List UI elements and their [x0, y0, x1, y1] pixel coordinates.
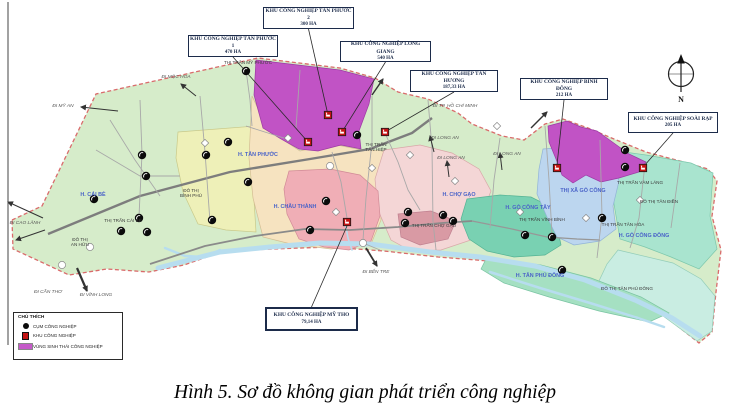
callout-zone-area: 300 HA — [265, 22, 352, 28]
industrial-cluster-marker-icon — [621, 163, 629, 171]
industrial-cluster-marker-icon — [202, 151, 210, 159]
eco-industrial-area-swatch — [18, 343, 33, 350]
industrial-cluster-marker-icon — [521, 231, 529, 239]
callout-kcn-tan-phuoc-2: KHU CÔNG NGHIỆP TÂN PHƯỚC 2300 HA — [263, 7, 354, 29]
town-label: THỊ TRẤN TÂN HÒA — [602, 221, 646, 227]
industrial-cluster-marker-icon — [306, 226, 314, 234]
callout-kcn-my-tho: KHU CÔNG NGHIỆP MỸ THO79,14 HA — [265, 307, 358, 331]
legend-item-label: CỤM CÔNG NGHIỆP — [33, 324, 77, 329]
callout-kcn-tan-phuoc-1: KHU CÔNG NGHIỆP TÂN PHƯỚC 1470 HA — [188, 35, 278, 57]
district-label: H. TÂN PHƯỚC — [238, 150, 278, 158]
route-shield-circle-icon — [326, 162, 333, 169]
industrial-cluster-marker-icon — [244, 178, 252, 186]
industrial-zone-marker-icon — [304, 138, 311, 145]
direction-label: ĐI TP. HỒ CHÍ MINH — [433, 102, 478, 109]
district-label: H. CHỢ GẠO — [442, 192, 475, 198]
legend-item-label: VÙNG SINH THÁI CÔNG NGHIỆP — [33, 344, 103, 349]
callout-zone-name: KHU CÔNG NGHIỆP LONG GIANG — [342, 41, 429, 55]
callout-zone-name: KHU CÔNG NGHIỆP SOÀI RẠP — [630, 116, 716, 123]
industrial-zone-marker-icon — [338, 128, 345, 135]
callout-kcn-tan-huong: KHU CÔNG NGHIỆP TÂN HƯƠNG187,33 HA — [410, 70, 498, 92]
industrial-zone-marker-icon — [639, 164, 646, 171]
figure-caption: Hình 5. Sơ đồ không gian phát triển công… — [0, 382, 730, 404]
district-label: THỊ XÃ GÒ CÔNG — [560, 186, 605, 194]
town-label: THỊ TRẤN VĨNH BÌNH — [519, 216, 565, 222]
legend-items: CỤM CÔNG NGHIỆPKHU CÔNG NGHIỆPVÙNG SINH … — [18, 323, 118, 350]
direction-label: ĐI CẦN THƠ — [34, 288, 63, 295]
legend-item-label: KHU CÔNG NGHIỆP — [33, 333, 76, 338]
industrial-cluster-marker-icon — [224, 138, 232, 146]
town-label: THỊ TRẤN CHỢ GẠO — [412, 222, 457, 228]
callout-zone-area: 470 HA — [190, 50, 276, 56]
route-shield-circle-icon — [58, 261, 65, 268]
direction-label: ĐI VĨNH LONG — [80, 291, 113, 298]
industrial-development-map-figure: ĐI MỘC HÓAĐI MỸ ANĐI CAO LÃNHĐI CẦN THƠĐ… — [0, 0, 730, 416]
callout-zone-area: 205 HA — [630, 123, 716, 129]
industrial-cluster-marker-icon — [18, 323, 33, 329]
town-label: THỊ TRẤN MỸ PHƯỚC — [224, 59, 273, 65]
industrial-cluster-marker-icon — [401, 219, 409, 227]
industrial-cluster-marker-icon — [621, 146, 629, 154]
town-label: ĐÔ THỊAN HỮU — [71, 236, 89, 247]
route-shield-circle-icon — [359, 239, 366, 246]
callout-zone-area: 187,33 HA — [412, 85, 496, 91]
district-label: H. GÒ CÔNG ĐÔNG — [619, 231, 670, 239]
town-label: THỊ TRẤN CÁI BÈ — [104, 217, 141, 223]
town-label: ĐÔ THỊBÌNH PHÚ — [180, 187, 202, 198]
industrial-zone-marker-icon — [343, 218, 350, 225]
compass-rose-icon: N — [669, 54, 694, 104]
industrial-cluster-marker-icon — [138, 151, 146, 159]
legend-item: KHU CÔNG NGHIỆP — [18, 332, 118, 340]
industrial-cluster-marker-icon — [598, 214, 606, 222]
callout-kcn-binh-dong: KHU CÔNG NGHIỆP BÌNH ĐÔNG212 HA — [520, 78, 608, 100]
industrial-cluster-marker-icon — [208, 216, 216, 224]
callout-zone-area: 540 HA — [342, 56, 429, 62]
legend-title: CHÚ THÍCH — [18, 315, 118, 320]
direction-label: ĐI LONG AN — [493, 151, 521, 157]
direction-label: ĐI MỘC HÓA — [161, 73, 190, 80]
callout-zone-name: KHU CÔNG NGHIỆP TÂN PHƯỚC 1 — [190, 36, 276, 50]
district-label: H. CÁI BÈ — [80, 190, 106, 198]
industrial-cluster-marker-icon — [353, 131, 361, 139]
industrial-cluster-marker-icon — [143, 228, 151, 236]
industrial-cluster-marker-icon — [439, 211, 447, 219]
route-shield-diamond-icon — [493, 122, 500, 129]
callout-zone-area: 79,14 HA — [268, 320, 355, 326]
direction-label: ĐI MỸ AN — [52, 102, 74, 109]
legend-item: VÙNG SINH THÁI CÔNG NGHIỆP — [18, 343, 118, 350]
district-label: H. TÂN PHÚ ĐÔNG — [516, 271, 565, 279]
industrial-cluster-marker-icon — [242, 67, 250, 75]
callout-kcn-long-giang: KHU CÔNG NGHIỆP LONG GIANG540 HA — [340, 41, 431, 62]
town-label: ĐÔ THỊ TÂN PHÚ ĐÔNG — [601, 285, 653, 291]
compass-north-label: N — [678, 95, 684, 104]
town-label: THỊ TRẤNTÂN HIỆP — [365, 141, 386, 152]
town-label: ĐÔ THỊ TÂN ĐIỀN — [640, 198, 678, 204]
industrial-cluster-marker-icon — [404, 208, 412, 216]
industrial-zone-marker-icon — [18, 332, 33, 340]
industrial-cluster-marker-icon — [142, 172, 150, 180]
industrial-cluster-marker-icon — [548, 233, 556, 241]
callout-zone-area: 212 HA — [522, 93, 606, 99]
industrial-zone-marker-icon — [324, 111, 331, 118]
industrial-cluster-marker-icon — [117, 227, 125, 235]
direction-label: ĐI CAO LÃNH — [10, 219, 41, 226]
industrial-zone-marker-icon — [381, 128, 388, 135]
direction-label: ĐI BẾN TRE — [363, 267, 391, 275]
direction-label: ĐI LONG AN — [431, 135, 459, 141]
map-legend: CHÚ THÍCH CỤM CÔNG NGHIỆPKHU CÔNG NGHIỆP… — [13, 312, 123, 360]
industrial-cluster-marker-icon — [322, 197, 330, 205]
industrial-zone-marker-icon — [553, 164, 560, 171]
callout-zone-name: KHU CÔNG NGHIỆP TÂN HƯƠNG — [412, 71, 496, 85]
callout-kcn-soai-rap: KHU CÔNG NGHIỆP SOÀI RẠP205 HA — [628, 112, 718, 133]
town-label: THỊ TRẤN VÀM LÁNG — [617, 179, 664, 185]
callout-zone-name: KHU CÔNG NGHIỆP BÌNH ĐÔNG — [522, 79, 606, 93]
district-label: H. CHÂU THÀNH — [274, 203, 317, 210]
legend-item: CỤM CÔNG NGHIỆP — [18, 323, 118, 329]
district-label: H. GÒ CÔNG TÂY — [505, 203, 551, 211]
callout-zone-name: KHU CÔNG NGHIỆP TÂN PHƯỚC 2 — [265, 8, 352, 22]
direction-label: ĐI LONG AN — [437, 155, 465, 161]
callout-zone-name: KHU CÔNG NGHIỆP MỸ THO — [268, 312, 355, 319]
